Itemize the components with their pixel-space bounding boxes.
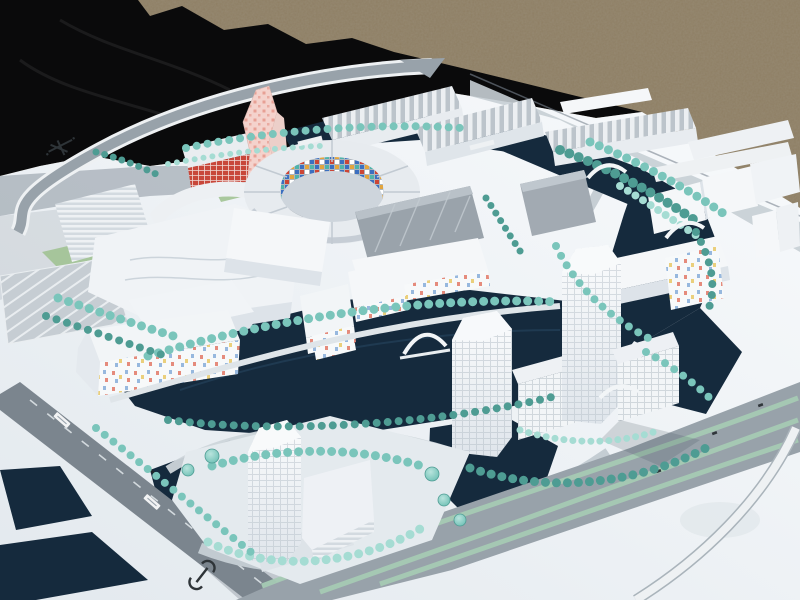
edge-tower-1 — [752, 210, 780, 258]
model-photograph — [0, 0, 800, 600]
edge-tower-2 — [776, 202, 800, 252]
scene — [0, 0, 800, 600]
